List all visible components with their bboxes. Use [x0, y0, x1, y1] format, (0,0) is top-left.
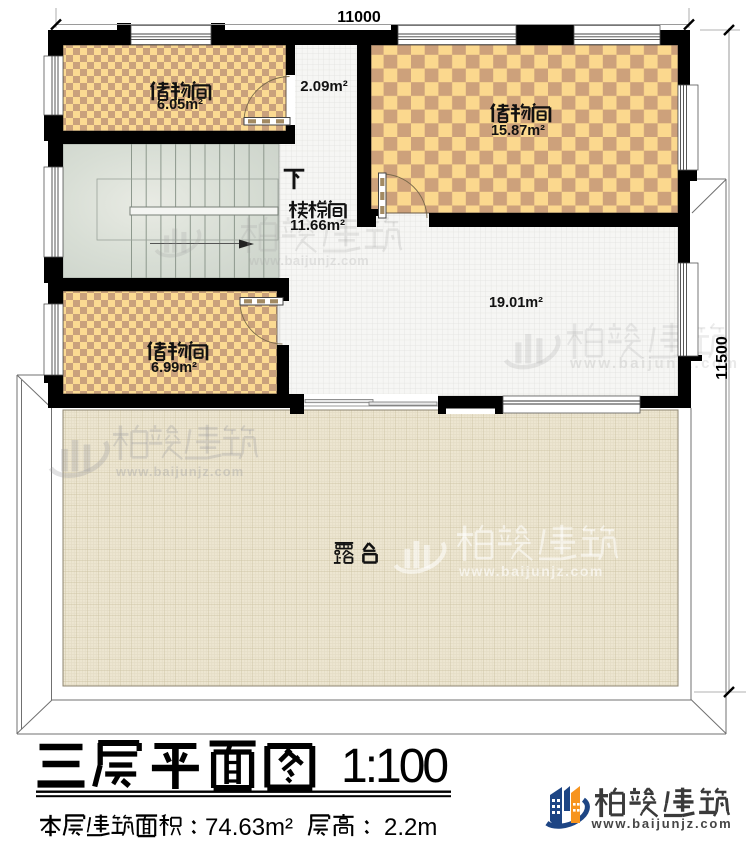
svg-text:19.01m²: 19.01m²: [489, 295, 543, 311]
svg-text:www.baijunjz.com: www.baijunjz.com: [248, 253, 369, 268]
svg-text:www.baijunjz.com: www.baijunjz.com: [115, 464, 244, 479]
svg-text:2.2m: 2.2m: [384, 814, 437, 841]
svg-text:www.baijunjz.com: www.baijunjz.com: [591, 816, 733, 831]
svg-text:15.87m²: 15.87m²: [491, 123, 545, 139]
svg-text:6.99m²: 6.99m²: [151, 360, 197, 376]
svg-text:74.63m²: 74.63m²: [205, 814, 293, 841]
svg-text:www.baijunjz.com: www.baijunjz.com: [458, 563, 604, 579]
svg-text:11000: 11000: [337, 9, 381, 26]
svg-text:6.05m²: 6.05m²: [157, 97, 203, 113]
svg-text:11.66m²: 11.66m²: [290, 217, 345, 234]
svg-text:11500: 11500: [714, 336, 731, 380]
svg-text:1:100: 1:100: [341, 740, 447, 793]
svg-text:2.09m²: 2.09m²: [300, 78, 348, 95]
